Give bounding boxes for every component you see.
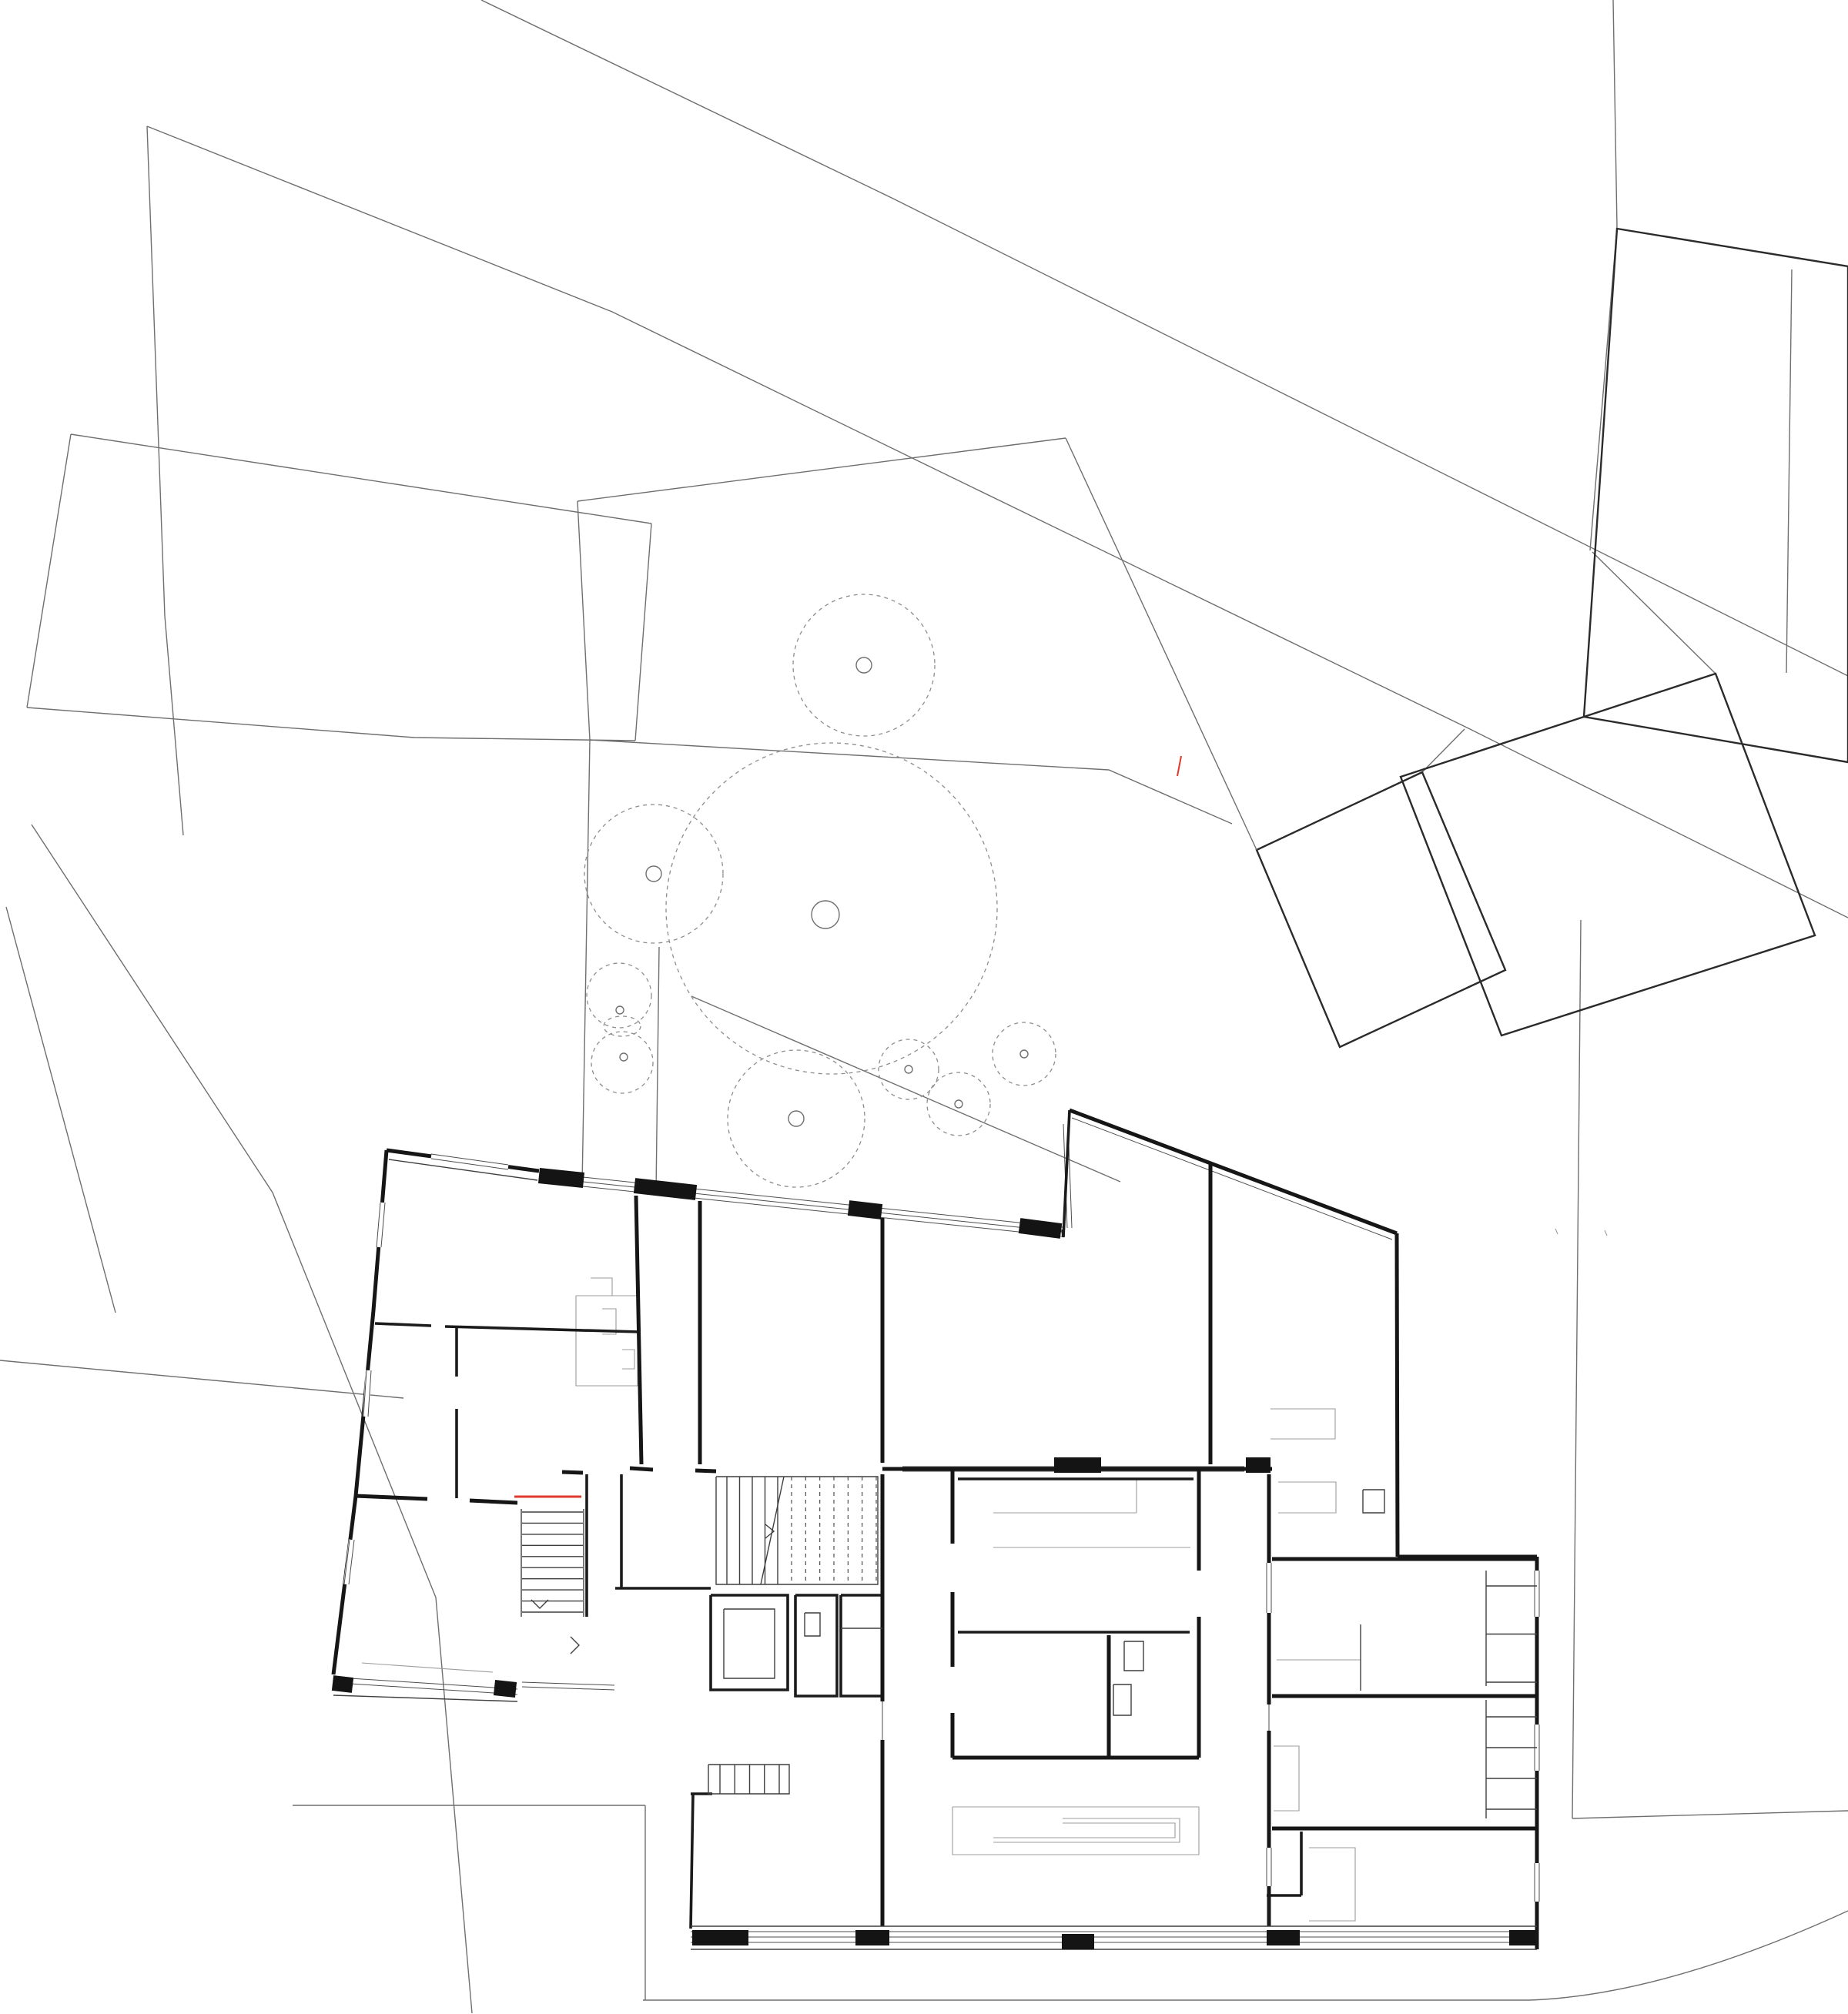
wing-bottom-pier-e <box>494 1688 516 1690</box>
parcel-se-left <box>1572 920 1581 1818</box>
square-connector-2 <box>1592 552 1716 674</box>
wing-top-window <box>431 1156 508 1167</box>
tree-west-canopy <box>584 805 723 943</box>
sw-corner-wall <box>691 1794 693 1929</box>
parcel-se-bottom <box>1572 1811 1848 1818</box>
garden-top-edge <box>577 438 1066 501</box>
wing-west-window-3 <box>346 1540 352 1584</box>
garden-wall-pier-2 <box>849 1208 882 1212</box>
tree-large-center-trunk <box>812 901 839 928</box>
shrub-ellipse <box>604 1016 641 1036</box>
garden-wall-glass-3 <box>539 1182 1063 1236</box>
stair-main-treads <box>522 1512 583 1612</box>
parcel-ne-vertical <box>1613 0 1617 227</box>
wing-room-divider-h2 <box>445 1326 639 1332</box>
plan-canvas <box>0 0 1848 2014</box>
band-wall-seg-2 <box>630 1468 653 1470</box>
stair-exit-glass-2 <box>522 1687 614 1690</box>
survey-tick-2 <box>1605 1230 1607 1236</box>
tree-small-4-trunk <box>955 1100 962 1108</box>
road-upper-edge <box>481 0 1848 676</box>
garden-terrace-line-2 <box>691 996 1120 1182</box>
tree-small-1-trunk <box>616 1006 624 1014</box>
counter-bench-2 <box>993 1823 1175 1838</box>
parcel-nw-left <box>27 434 71 708</box>
tree-small-1-canopy <box>587 963 651 1028</box>
newing-square-fixture <box>1363 1490 1384 1513</box>
parcel-nw-bottom <box>27 708 635 741</box>
parcel-left-vertical <box>147 126 183 835</box>
rwing-gray-rect <box>1274 1746 1299 1811</box>
counter-outline <box>952 1807 1199 1855</box>
square-connector-1 <box>1422 729 1465 772</box>
terrace-room-inner <box>362 1663 493 1672</box>
rwing-gray-rect-2 <box>1309 1848 1355 1921</box>
tree-small-5-canopy <box>993 1022 1056 1086</box>
tree-large-center-canopy <box>666 743 997 1074</box>
elevator-car <box>724 1609 775 1678</box>
garden-wall-glass-2 <box>539 1177 1063 1232</box>
wc2-outline <box>841 1595 882 1696</box>
newing-east-edge <box>1397 1233 1398 1557</box>
floor-plan-drawing <box>0 0 1848 2014</box>
cstair-treads-dashed <box>792 1477 876 1584</box>
garden-wall-solid <box>539 1176 584 1180</box>
newing-gray-rect <box>1270 1409 1335 1439</box>
tree-small-4-canopy <box>927 1072 990 1136</box>
newing-top-edge <box>1070 1110 1397 1233</box>
tree-north-trunk <box>856 657 872 673</box>
wing-room-divider-h <box>375 1323 431 1326</box>
band-wall-seg-1 <box>562 1472 583 1473</box>
steps-strip-outline <box>708 1765 789 1794</box>
garden-right-edge <box>1066 438 1257 850</box>
shelf-a-dividers <box>1486 1586 1537 1682</box>
wing-bottom-glass-1 <box>350 1678 517 1689</box>
tree-small-2-canopy <box>591 1032 653 1093</box>
newing-top-inner <box>1072 1118 1392 1240</box>
garden-wall-glass-1 <box>539 1173 1063 1227</box>
tree-small-5-trunk <box>1020 1050 1028 1058</box>
newing-gray-cabinet <box>1278 1482 1336 1513</box>
cstair-outline <box>716 1477 878 1584</box>
tree-medium-south-trunk <box>788 1111 804 1126</box>
wc1-fixture <box>805 1613 820 1636</box>
survey-tick-1 <box>1555 1229 1558 1234</box>
parcel-e-vertical <box>1786 269 1792 673</box>
parcel-nw-top <box>71 434 651 524</box>
tree-small-3-trunk <box>905 1066 912 1073</box>
stair-arrow-right <box>571 1637 579 1654</box>
steps-strip-treads <box>720 1765 779 1794</box>
tree-west-trunk <box>646 866 661 882</box>
counter-bench-1 <box>993 1818 1180 1842</box>
wing-east-wall <box>636 1196 641 1464</box>
box-fixture-2 <box>1113 1684 1131 1715</box>
neighbor-building-ne <box>1584 229 1848 762</box>
wing-lower-wall-2 <box>470 1500 517 1503</box>
tree-small-2-trunk <box>620 1053 628 1061</box>
desk-chair <box>622 1350 634 1369</box>
site-bottom-boundary <box>643 1911 1848 2000</box>
desk-top-box <box>591 1278 612 1296</box>
red-site-segment <box>1177 756 1181 776</box>
garden-wall-pier-3 <box>1019 1226 1061 1231</box>
neighbor-square-1 <box>1257 772 1505 1047</box>
garden-left-edge <box>577 501 590 1186</box>
parcel-nw-right <box>635 524 651 741</box>
band-wall-seg-3 <box>695 1470 716 1471</box>
shelf-b-dividers <box>1486 1717 1537 1809</box>
tree-north-canopy <box>793 594 935 736</box>
garden-wall-pier-1 <box>634 1186 696 1193</box>
garden-path-edge <box>656 947 659 1192</box>
tree-medium-south-canopy <box>728 1050 865 1187</box>
parcel-sw-diagonal <box>32 825 472 2013</box>
parcel-sw-diagonal-2 <box>6 907 115 1313</box>
garden-terrace-line-1 <box>590 740 1232 824</box>
wing-bottom-pier-w <box>333 1683 353 1685</box>
stair-exit-glass-1 <box>522 1682 614 1685</box>
wing-bottom-glass-2 <box>350 1684 517 1695</box>
cstair-treads-solid <box>727 1477 778 1584</box>
wing-bottom-outer <box>333 1695 517 1701</box>
wing-lower-wall <box>356 1496 427 1499</box>
wc1-outline <box>795 1595 837 1696</box>
box-fixture-1 <box>1124 1641 1143 1671</box>
neighbor-square-2 <box>1401 674 1815 1035</box>
